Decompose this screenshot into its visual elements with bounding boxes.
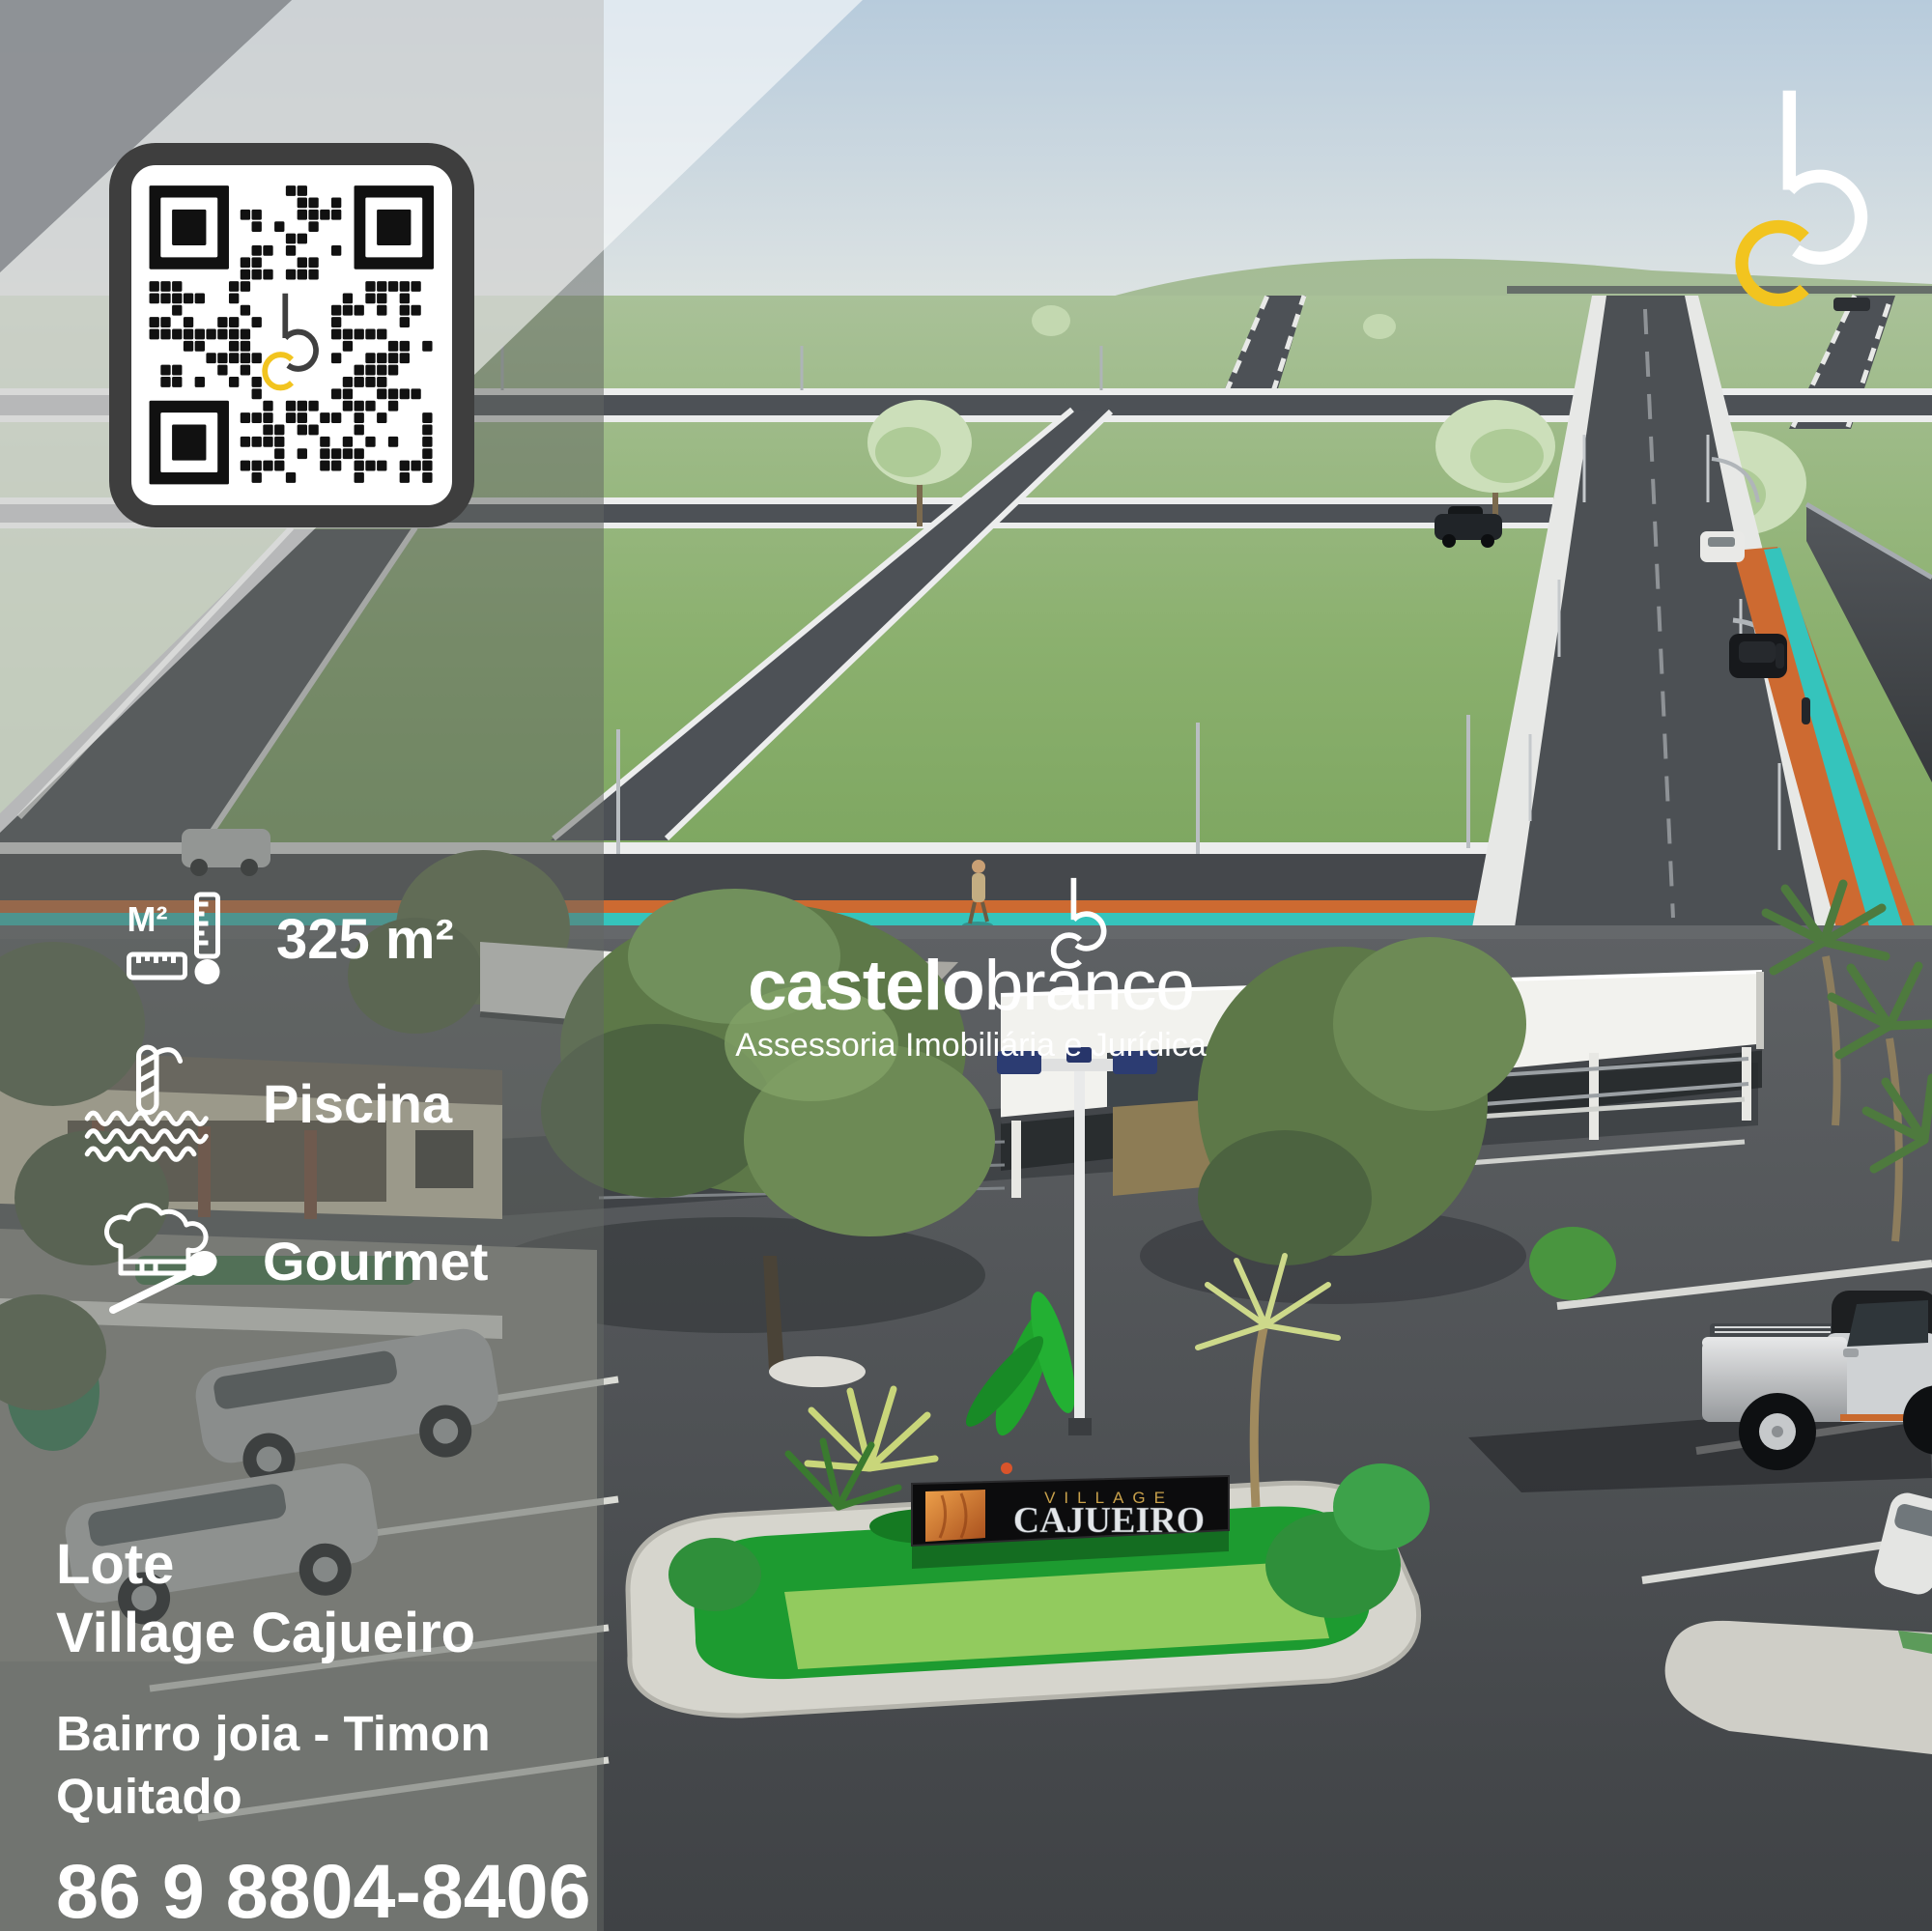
- sign-logo-square: [925, 1490, 985, 1542]
- listing-title: Lote Village Cajueiro: [56, 1531, 475, 1668]
- sign-line2: CAJUEIRO: [1013, 1500, 1205, 1541]
- pool-ladder-icon: [81, 1041, 234, 1165]
- feature-area-label: 325 m²: [276, 907, 454, 972]
- brand-wordmark: castelobranco: [713, 951, 1229, 1021]
- feature-gourmet: Gourmet: [87, 1202, 488, 1320]
- listing-line2: Village Cajueiro: [56, 1600, 475, 1668]
- feature-pool: Piscina: [81, 1041, 452, 1165]
- qr-code: [109, 143, 474, 527]
- chef-hat-spoon-icon: [87, 1202, 234, 1320]
- feature-area: M² 325 m²: [124, 891, 454, 987]
- qr-center-logo-c: [265, 355, 292, 387]
- brand-tagline: Assessoria Imobiliária e Jurídica: [713, 1027, 1229, 1065]
- listing-status: Quitado: [56, 1766, 491, 1829]
- feature-pool-label: Piscina: [263, 1072, 452, 1135]
- brand-lockup: castelobranco Assessoria Imobiliária e J…: [713, 951, 1229, 1065]
- listing-location: Bairro joia - Timon: [56, 1703, 491, 1766]
- phone-number: 86 9 8804-8406: [56, 1847, 591, 1931]
- listing-subtitle: Bairro joia - Timon Quitado: [56, 1703, 491, 1829]
- ruler-area-icon: M²: [124, 891, 247, 987]
- listing-line1: Lote: [56, 1531, 475, 1600]
- feature-gourmet-label: Gourmet: [263, 1230, 488, 1292]
- bc-monogram-icon: [1731, 73, 1878, 315]
- qr-pattern: [139, 175, 444, 496]
- poster: VILLAGE CAJUEIRO: [0, 0, 1932, 1931]
- brand-name-light: branco: [984, 947, 1194, 1025]
- ruler-icon-label: M²: [128, 899, 168, 939]
- brand-name-bold: castelo: [748, 947, 984, 1025]
